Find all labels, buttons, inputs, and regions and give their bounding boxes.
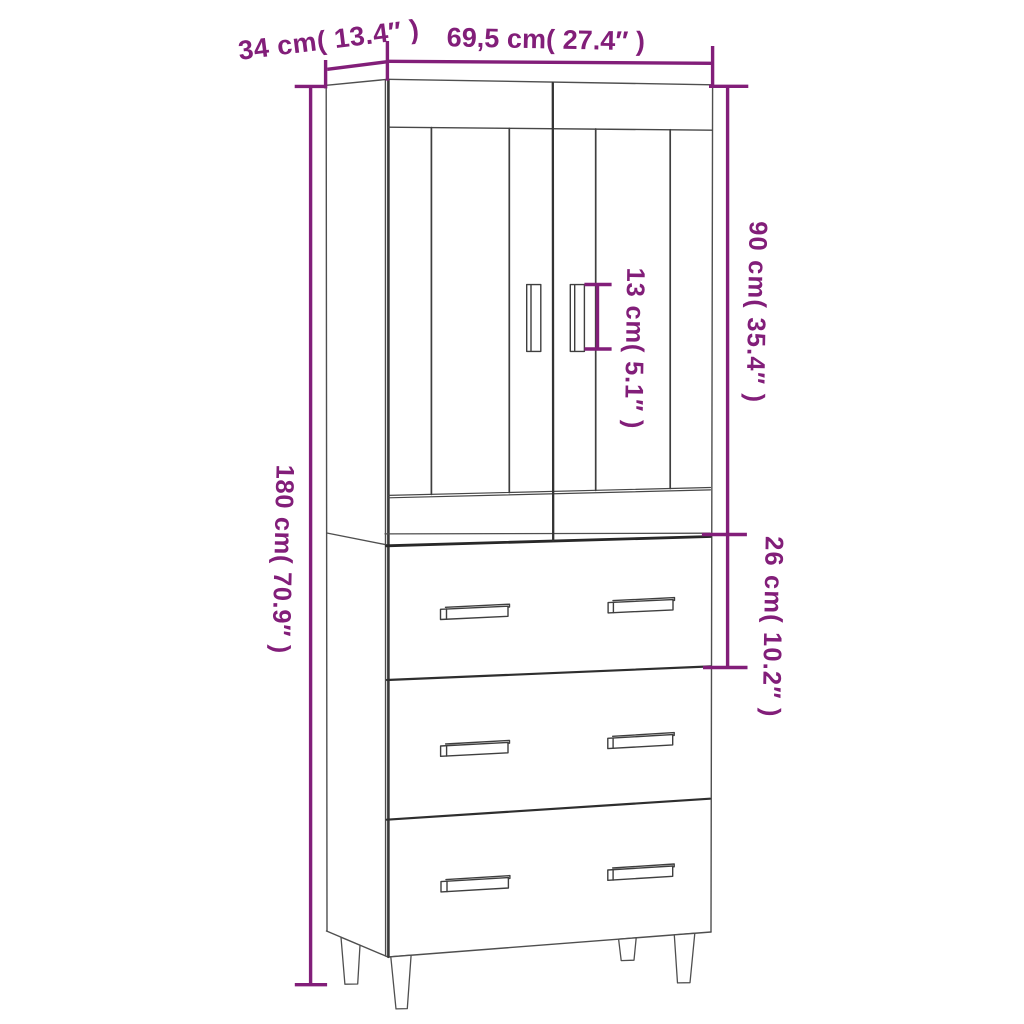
svg-text:26 cm( 10.2″ ): 26 cm( 10.2″ ): [757, 536, 788, 718]
svg-text:69,5 cm( 27.4″ ): 69,5 cm( 27.4″ ): [446, 22, 645, 56]
svg-text:13 cm( 5.1″ ): 13 cm( 5.1″ ): [619, 267, 649, 429]
svg-text:90 cm( 35.4″ ): 90 cm( 35.4″ ): [741, 221, 772, 404]
svg-text:180 cm( 70.9″ ): 180 cm( 70.9″ ): [266, 464, 298, 654]
